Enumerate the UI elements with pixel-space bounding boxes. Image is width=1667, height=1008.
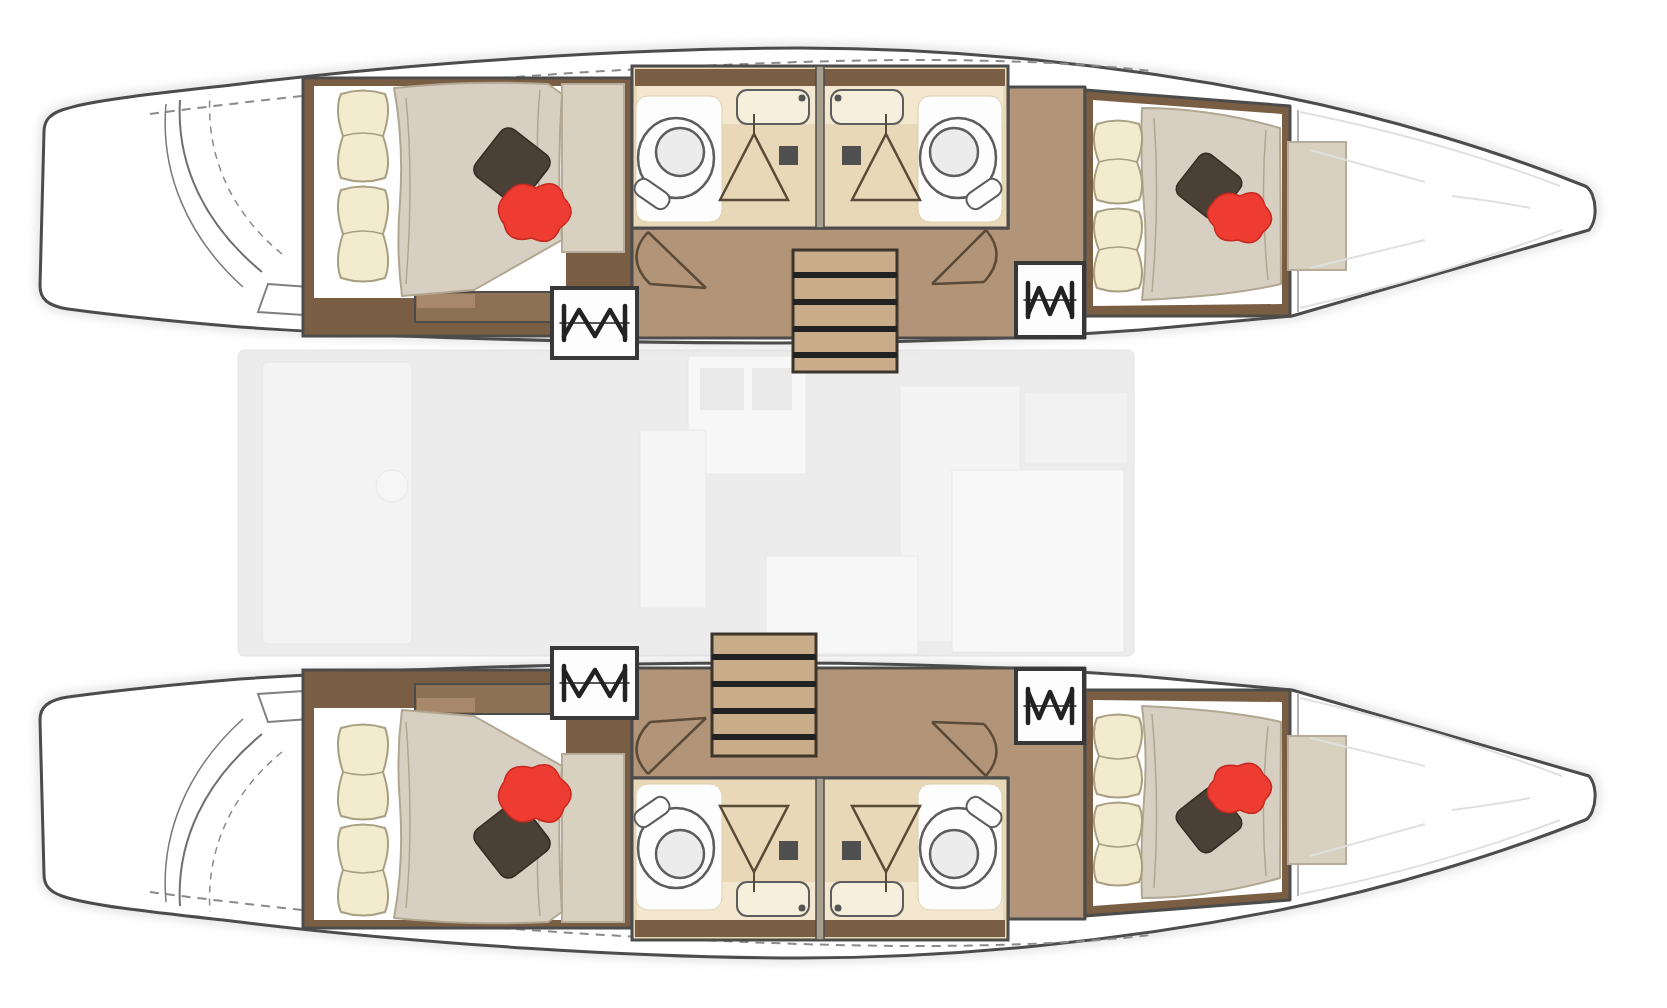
companionway-stairs-starboard [712, 634, 816, 756]
helm-seat [376, 470, 408, 502]
cockpit-bench [262, 362, 412, 644]
galley-lower-unit [640, 430, 706, 608]
side-unit [1024, 392, 1128, 464]
floorplan-canvas [0, 0, 1667, 1008]
floorplan-page [0, 0, 1667, 1008]
saloon-overlay [238, 350, 1134, 656]
hull-starboard [40, 648, 1595, 958]
companionway-stairs-port [793, 250, 897, 372]
galley-appliance [700, 368, 744, 410]
galley-appliance [752, 368, 792, 410]
saloon-table [952, 470, 1124, 652]
